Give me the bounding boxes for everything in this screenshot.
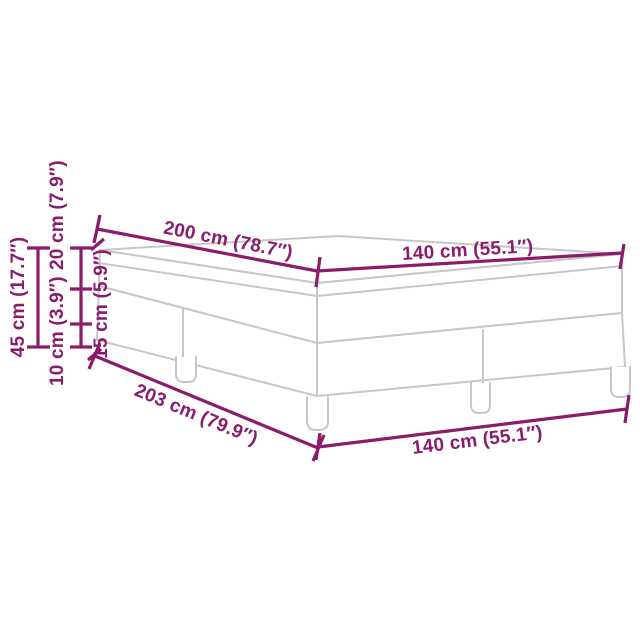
bed-leg-front <box>307 397 328 430</box>
bed-leg-right-mid <box>471 383 490 413</box>
dimension-line-height-segments <box>70 248 92 347</box>
bed-leg-right-corner <box>611 367 630 397</box>
bed-dimension-diagram: 200 cm (78.7″) 140 cm (55.1″) 45 cm (17.… <box>0 0 640 640</box>
diagram-canvas: 200 cm (78.7″) 140 cm (55.1″) 45 cm (17.… <box>0 0 640 640</box>
label-total-height: 45 cm (17.7″) <box>8 237 29 358</box>
label-frame-height: 15 cm (5.9″) <box>91 249 112 359</box>
bed-leg-left <box>176 357 196 382</box>
label-mattress-height: 20 cm (7.9″) <box>47 160 68 270</box>
label-leg-height: 10 cm (3.9″) <box>47 276 68 386</box>
